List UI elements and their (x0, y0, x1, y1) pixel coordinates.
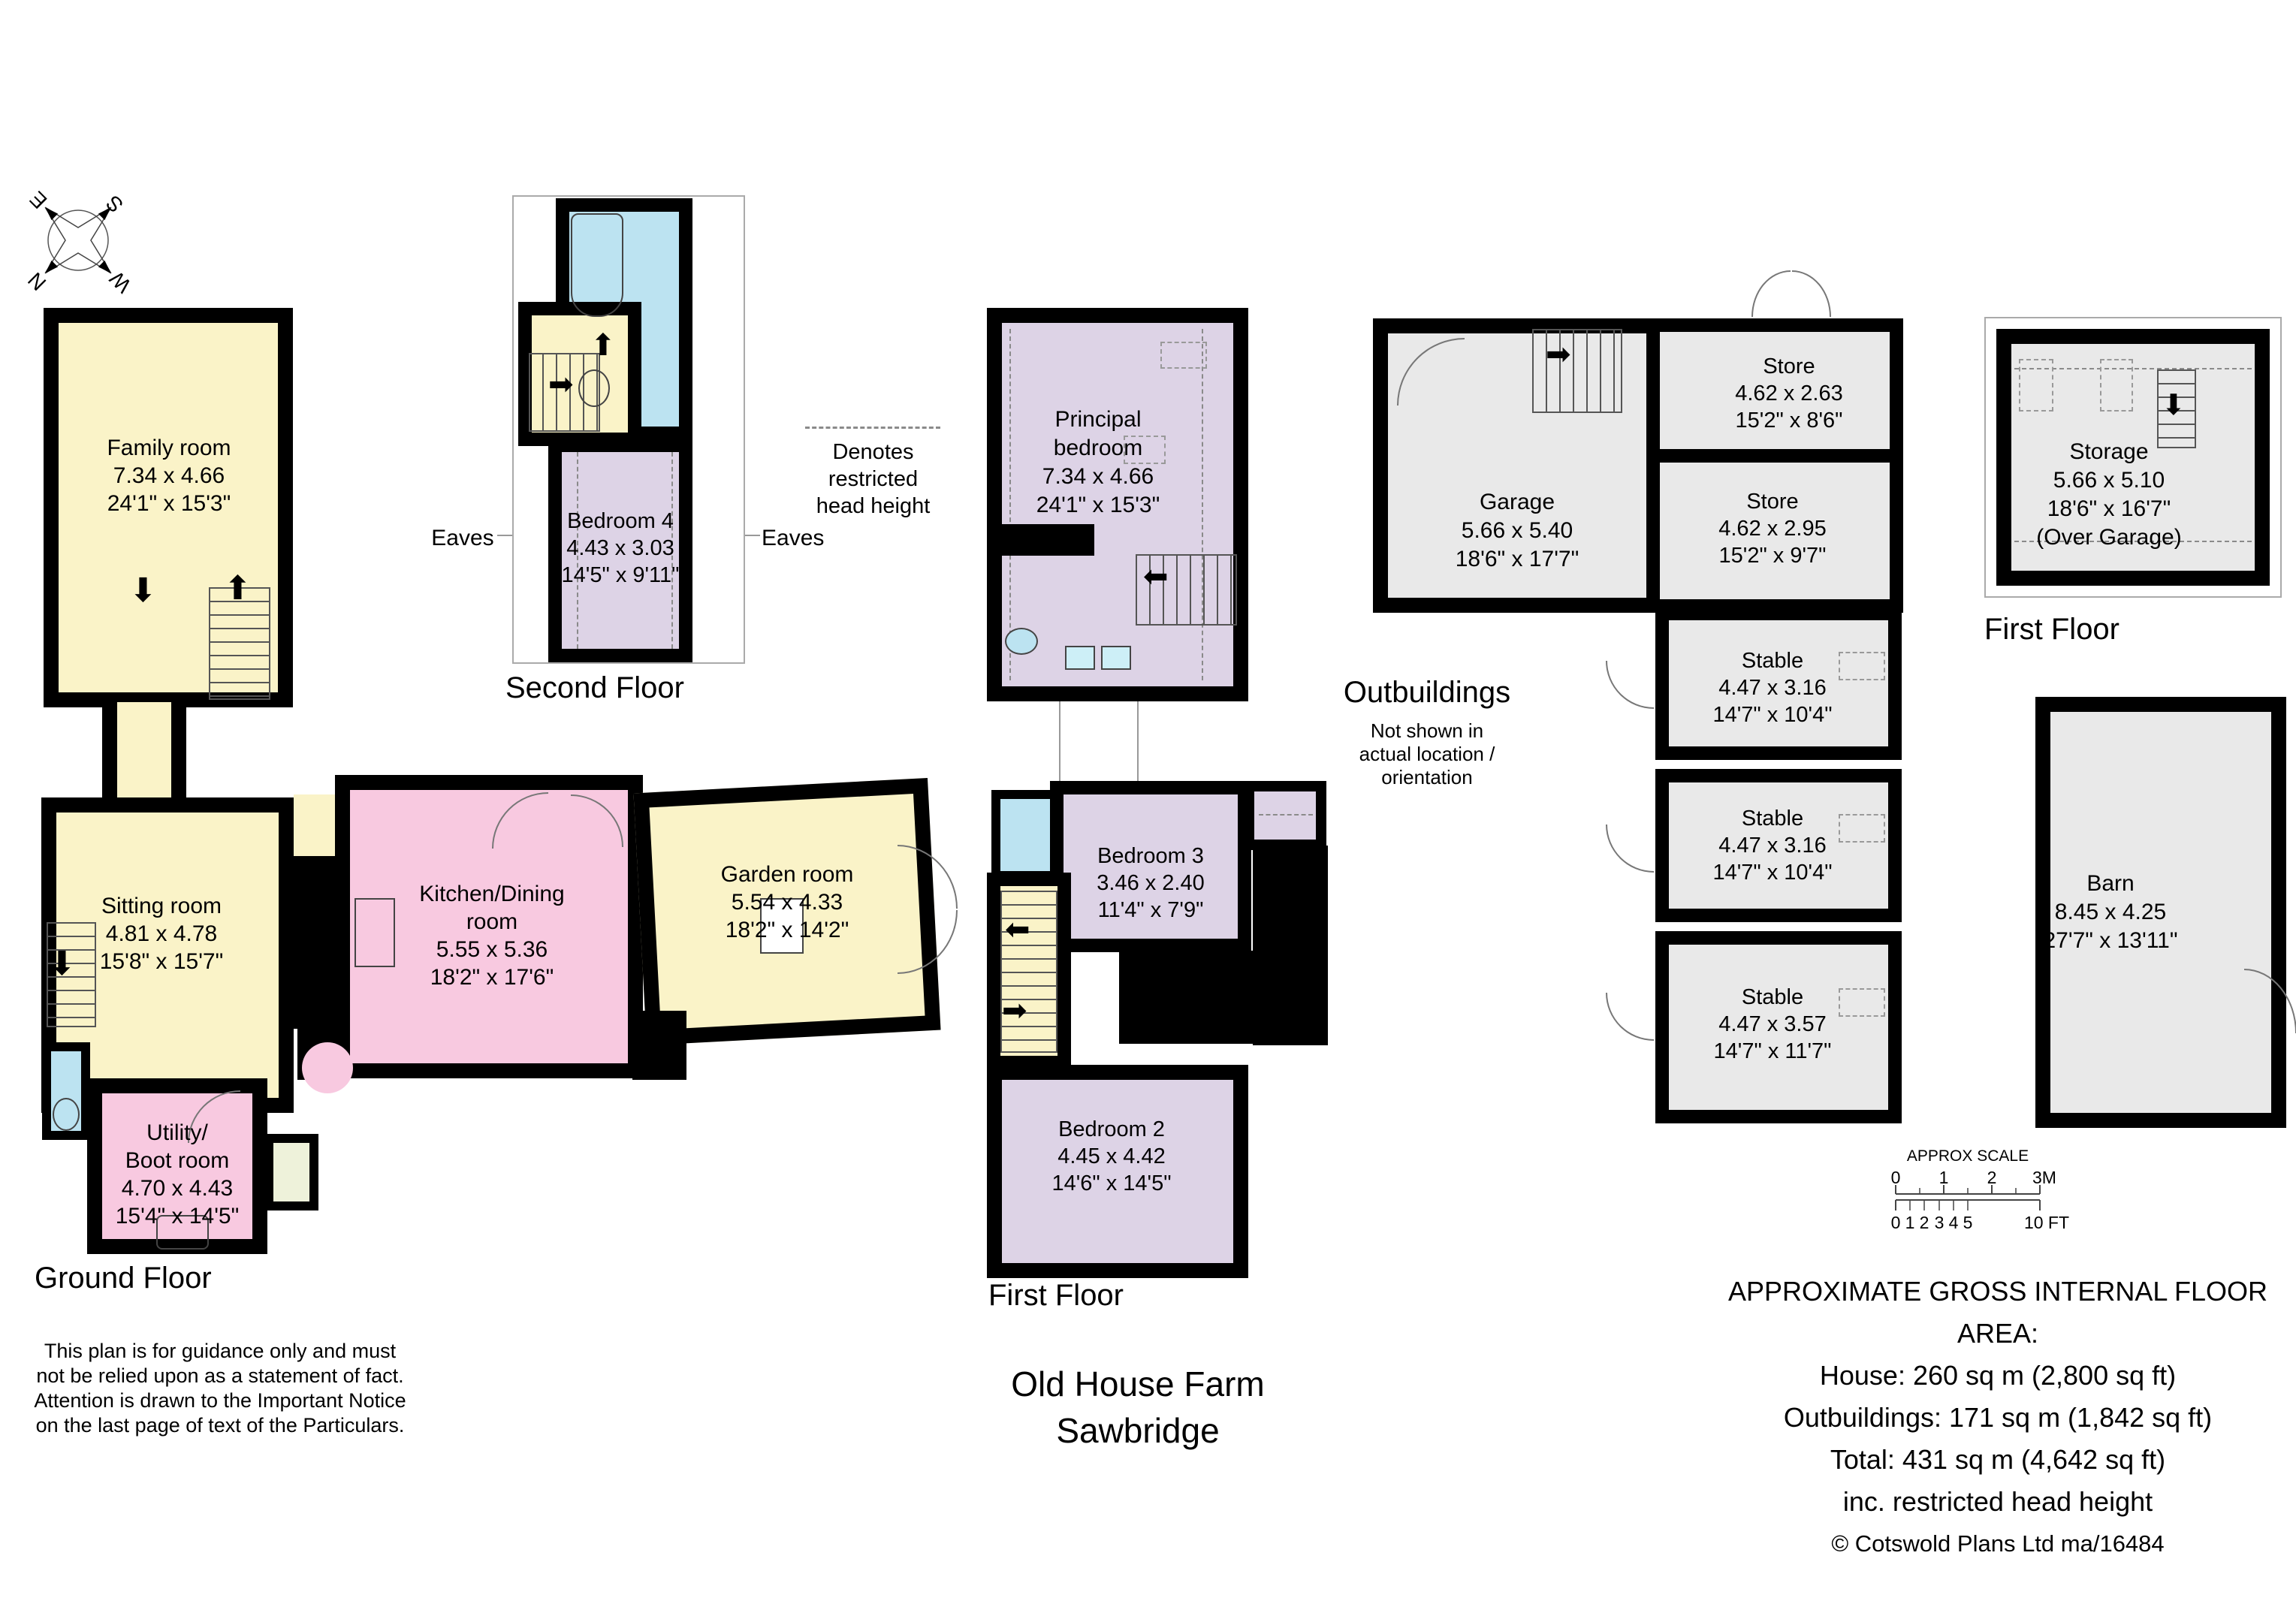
restricted-height-line (1259, 814, 1313, 816)
area-summary: APPROXIMATE GROSS INTERNAL FLOOR AREA: H… (1705, 1271, 2291, 1565)
floor-connector-line (1137, 701, 1139, 781)
porch (264, 1134, 318, 1210)
storage-label: Storage 5.66 x 5.10 18'6" x 16'7" (Over … (2019, 438, 2199, 552)
bedroom3-eaves-extension (1244, 781, 1326, 850)
scale-tick-label: 10 FT (2024, 1213, 2069, 1232)
scale-tick-label: 2 (1920, 1213, 1929, 1232)
stairs-right-arrow: ➡ (1002, 996, 1027, 1026)
store1-label: Store 4.62 x 2.63 15'2" x 8'6" (1699, 353, 1879, 434)
garage-label: Garage 5.66 x 5.40 18'6" x 17'7" (1427, 488, 1607, 574)
disclaimer: This plan is for guidance only and must … (29, 1339, 412, 1438)
toilet-icon (578, 369, 610, 407)
stairs-left-arrow: ⬅ (1005, 915, 1030, 945)
stable-door-arc (1606, 825, 1654, 873)
kitchen-passage (294, 794, 336, 864)
stairs-down-arrow: ⬇ (129, 574, 157, 607)
sink-icon (1065, 646, 1095, 670)
kitchen-room-label: Kitchen/Dining room 5.55 x 5.36 18'2" x … (402, 880, 582, 991)
principal-bedroom-label: Principal bedroom 7.34 x 4.66 24'1" x 15… (1008, 405, 1188, 520)
rooflight-outline (2019, 359, 2053, 412)
first-floor-house-label: First Floor (988, 1279, 1124, 1313)
sitting-room-label: Sitting room 4.81 x 4.78 15'8" x 15'7" (71, 892, 252, 975)
barn-label: Barn 8.45 x 4.25 27'7" x 13'11" (2020, 870, 2201, 955)
scale-bar-title: APPROX SCALE (1907, 1147, 2029, 1165)
compass-rose: N S E W (21, 180, 135, 300)
cooker-icon (355, 898, 395, 967)
double-door-arc (1792, 270, 1831, 317)
wall-mass (1119, 951, 1259, 1044)
wardrobe-outline (1160, 342, 1207, 369)
scale-tick-label: 1 (1905, 1213, 1915, 1232)
utility-lobby (90, 1038, 150, 1083)
stairs-left-arrow: ⬅ (1143, 562, 1169, 592)
floorplan-canvas: N S E W ⬇ ⬆ ⬇ Family room 7.34 x 4.66 24… (0, 0, 2296, 1622)
stable1-label: Stable 4.47 x 3.16 14'7" x 10'4" (1682, 647, 1863, 728)
second-floor-label: Second Floor (505, 671, 684, 705)
floor-connector-line (1059, 701, 1061, 781)
eaves-label-right: Eaves (762, 526, 828, 551)
eaves-pointer-line (745, 535, 760, 536)
store2-label: Store 4.62 x 2.95 15'2" x 9'7" (1682, 488, 1863, 569)
stairs-down-arrow: ⬇ (2162, 390, 2186, 419)
sink-icon (1101, 646, 1131, 670)
stairs-up-arrow: ⬆ (224, 572, 252, 605)
bath-icon (571, 213, 623, 317)
outbuildings-heading: Outbuildings (1329, 676, 1525, 710)
rooflight-outline (2100, 359, 2133, 412)
ensuite-wall (993, 524, 1094, 556)
stable-door-arc (1606, 993, 1654, 1041)
scale-tick-label: 4 (1949, 1213, 1959, 1232)
wall-mass (1253, 846, 1328, 1045)
stable2-label: Stable 4.47 x 3.16 14'7" x 10'4" (1682, 805, 1863, 886)
restricted-head-height-note: Denotes restricted head height (785, 439, 961, 520)
eaves-pointer-line (497, 535, 512, 536)
compass-arrow-w (98, 261, 114, 276)
stairs-right-arrow: ➡ (548, 369, 574, 399)
bedroom2-label: Bedroom 2 4.45 x 4.42 14'6" x 14'5" (1021, 1116, 1202, 1197)
first-floor-garage-label: First Floor (1984, 613, 2120, 647)
area-house: House: 260 sq m (2,800 sq ft) (1705, 1355, 2291, 1397)
stairs-up-arrow: ⬆ (590, 330, 616, 360)
scale-tick-label: 5 (1963, 1213, 1973, 1232)
garden-door-arc (898, 845, 958, 909)
scale-tick-label: 0 (1891, 1213, 1901, 1232)
double-door-arc (1751, 270, 1791, 317)
stairs-right-arrow: ➡ (1546, 339, 1571, 369)
round-table (302, 1042, 353, 1093)
plan-credit: © Cotswold Plans Ltd ma/16484 (1705, 1523, 2291, 1565)
stable3-label: Stable 4.47 x 3.57 14'7" x 11'7" (1682, 984, 1863, 1065)
area-outbuildings: Outbuildings: 171 sq m (1,842 sq ft) (1705, 1397, 2291, 1439)
utility-room-label: Utility/ Boot room 4.70 x 4.43 15'4" x 1… (87, 1119, 267, 1230)
scale-tick-label: 2 (1987, 1168, 1997, 1187)
first-floor-bathroom (991, 790, 1059, 880)
area-note: inc. restricted head height (1705, 1481, 2291, 1523)
ground-floor-label: Ground Floor (35, 1262, 212, 1295)
area-total: Total: 431 sq m (4,642 sq ft) (1705, 1439, 2291, 1481)
area-heading: APPROXIMATE GROSS INTERNAL FLOOR AREA: (1705, 1271, 2291, 1355)
restricted-legend-line (805, 427, 940, 429)
barn-door-arc (2244, 969, 2296, 1033)
garden-door-arc (898, 910, 958, 974)
scale-tick-label: 3M (2032, 1168, 2056, 1187)
family-room-label: Family room 7.34 x 4.66 24'1" x 15'3" (79, 434, 259, 517)
bedroom3-label: Bedroom 3 3.46 x 2.40 11'4" x 7'9" (1061, 843, 1241, 924)
compass-arrow-e (42, 204, 58, 220)
scale-bar: APPROX SCALE 0 1 2 3M 0 1 2 3 4 5 10 FT (1885, 1147, 2126, 1245)
property-title: Old House Farm Sawbridge (988, 1361, 1288, 1454)
garden-room-label: Garden room 5.54 x 4.33 18'2" x 14'2" (697, 861, 877, 944)
bedroom4-label: Bedroom 4 4.43 x 3.03 14'5" x 9'11" (545, 508, 695, 589)
outbuildings-note: Not shown in actual location / orientati… (1344, 719, 1510, 789)
wall-segment (632, 1011, 686, 1080)
stable-door-arc (1606, 661, 1654, 709)
scale-tick-label: 1 (1939, 1168, 1949, 1187)
scale-tick-label: 0 (1891, 1168, 1901, 1187)
toilet-icon (1005, 628, 1038, 655)
eaves-label-left: Eaves (430, 526, 496, 551)
toilet-icon (53, 1098, 80, 1131)
scale-tick-label: 3 (1935, 1213, 1945, 1232)
restricted-height-line (1202, 329, 1203, 680)
